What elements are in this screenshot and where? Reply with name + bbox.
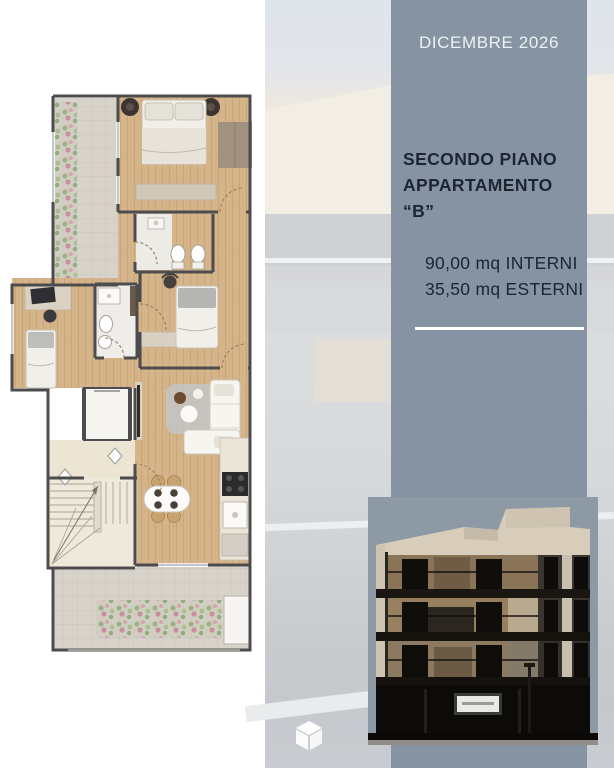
cube-icon [293, 719, 325, 753]
terrace-top [53, 98, 118, 285]
flyer-canvas: DICEMBRE 2026 SECONDO PIANO APPARTAMENTO… [0, 0, 614, 768]
stairwell-floor [48, 478, 137, 568]
bg-beige-block [315, 340, 395, 402]
title-line-apartment: APPARTAMENTO “B” [403, 172, 587, 224]
floor-plan-drawing [8, 92, 252, 652]
apartment-title: SECONDO PIANO APPARTAMENTO “B” [403, 146, 587, 224]
terrace-bottom [53, 562, 250, 650]
area-interior: 90,00 mq INTERNI [425, 250, 583, 276]
area-exterior: 35,50 mq ESTERNI [425, 276, 583, 302]
area-info: 90,00 mq INTERNI 35,50 mq ESTERNI [425, 250, 583, 302]
building-photo-render [368, 497, 598, 745]
entry-hall-floor [48, 440, 135, 478]
floor-plan [8, 92, 252, 652]
building-photo [368, 497, 598, 745]
divider-line [415, 327, 584, 330]
elevator-shaft [84, 388, 130, 440]
date-label: DICEMBRE 2026 [391, 33, 587, 53]
title-line-floor: SECONDO PIANO [403, 146, 587, 172]
